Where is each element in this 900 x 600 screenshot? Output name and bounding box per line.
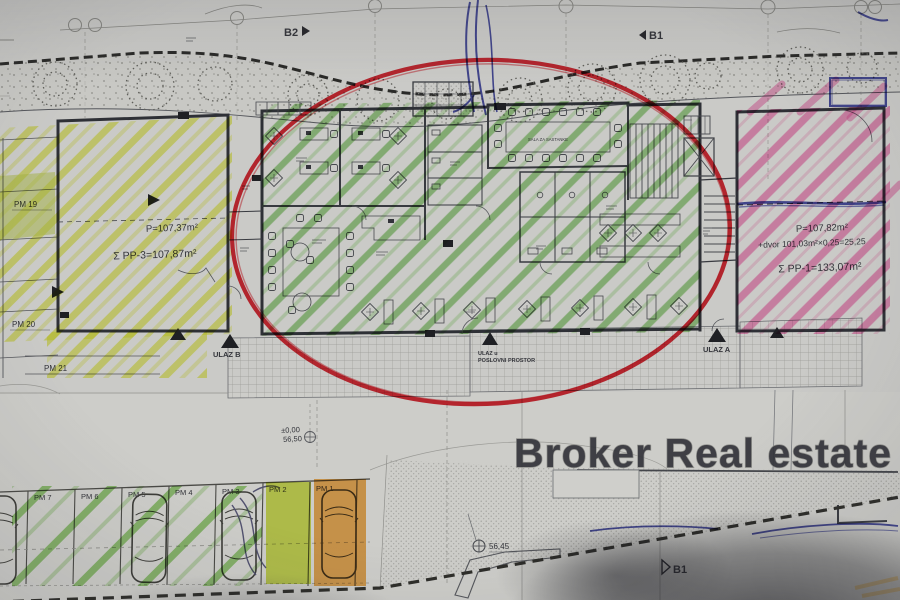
flag-b2-label: B2 bbox=[284, 27, 298, 39]
flag-b1-top-label: B1 bbox=[649, 30, 663, 42]
flag-b1-bottom-label: B1 bbox=[673, 564, 687, 576]
highlight-pm1-orange bbox=[314, 479, 366, 586]
ulaz-b-label: ULAZ B bbox=[213, 350, 241, 359]
watermark: Broker Real estate bbox=[514, 430, 892, 476]
highlight-pink-unit bbox=[725, 80, 900, 346]
ulaz-main-label-1: ULAZ u bbox=[478, 351, 498, 357]
level-lower: 56,45 bbox=[489, 542, 510, 551]
highlight-pm2-yellowgreen bbox=[266, 482, 311, 584]
highlight-parking-green bbox=[12, 486, 262, 586]
ulaz-a-label: ULAZ A bbox=[703, 345, 731, 354]
ulaz-main-label-2: POSLOVNI PROSTOR bbox=[478, 358, 535, 364]
highlight-green-unit bbox=[250, 88, 712, 348]
level-upper: 56,50 bbox=[283, 434, 302, 444]
floorplan-drawing: B2 B1 B1 bbox=[0, 0, 900, 600]
floorplan-photo: B2 B1 B1 bbox=[0, 0, 900, 600]
